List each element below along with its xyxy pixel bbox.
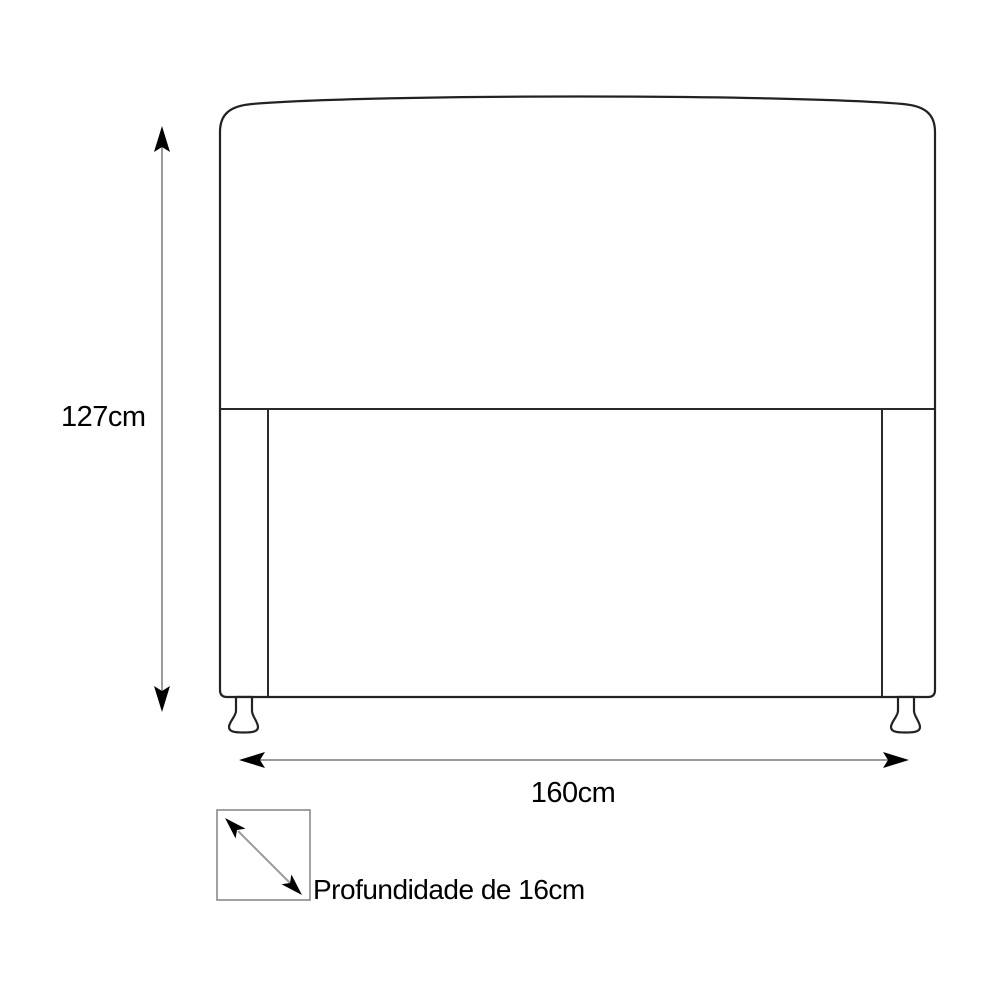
height-dimension-label: 127cm <box>61 403 146 432</box>
left-foot <box>229 697 258 733</box>
vertical-double-arrow-icon <box>154 126 170 712</box>
diagonal-double-arrow-icon <box>225 818 302 895</box>
headboard-outline <box>220 97 935 698</box>
horizontal-double-arrow-icon <box>239 752 909 768</box>
width-dimension-label: 160cm <box>503 779 643 808</box>
headboard-line-drawing <box>0 0 1000 1000</box>
right-foot <box>891 697 920 733</box>
depth-dimension-label: Profundidade de 16cm <box>313 876 585 904</box>
product-dimension-diagram: 127cm 160cm Profundidade de 16cm <box>0 0 1000 1000</box>
depth-dimension-shaft <box>238 831 290 883</box>
depth-indicator <box>217 810 310 900</box>
